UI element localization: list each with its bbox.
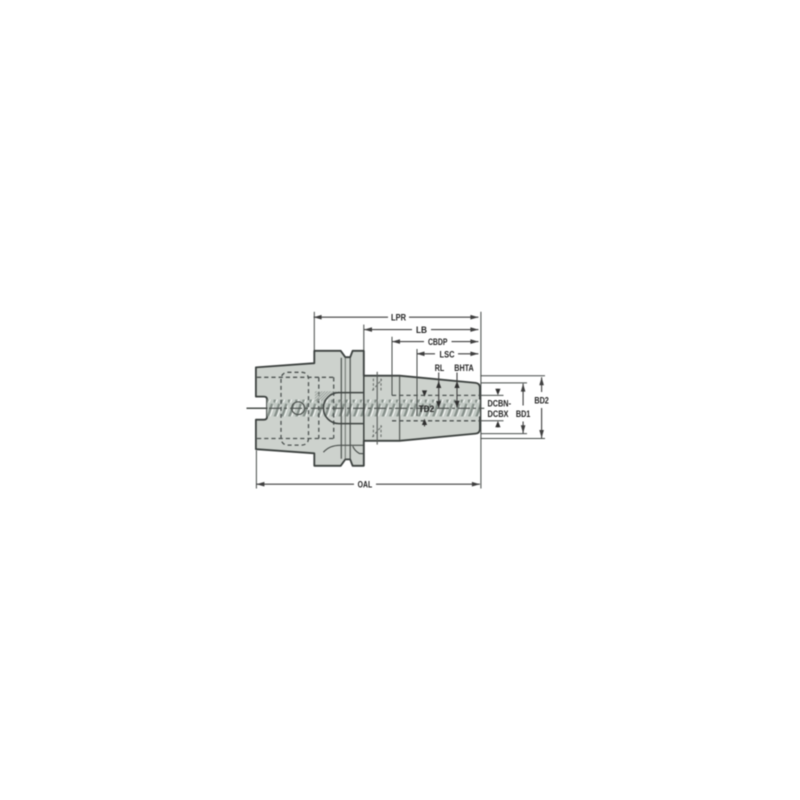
svg-text:CBDP: CBDP [428, 337, 448, 348]
svg-text:LPR: LPR [391, 313, 406, 324]
svg-text:LB: LB [416, 325, 427, 336]
svg-text:BD1: BD1 [516, 409, 531, 420]
svg-text:OAL: OAL [358, 480, 373, 491]
svg-text:DCBX: DCBX [488, 409, 510, 420]
svg-text:DCBN-: DCBN- [488, 398, 512, 409]
svg-text:LSC: LSC [440, 349, 455, 360]
svg-text:RL: RL [435, 363, 445, 374]
svg-text:BHTA: BHTA [454, 363, 474, 374]
svg-text:TD2: TD2 [419, 404, 435, 415]
svg-text:BD2: BD2 [534, 396, 549, 407]
